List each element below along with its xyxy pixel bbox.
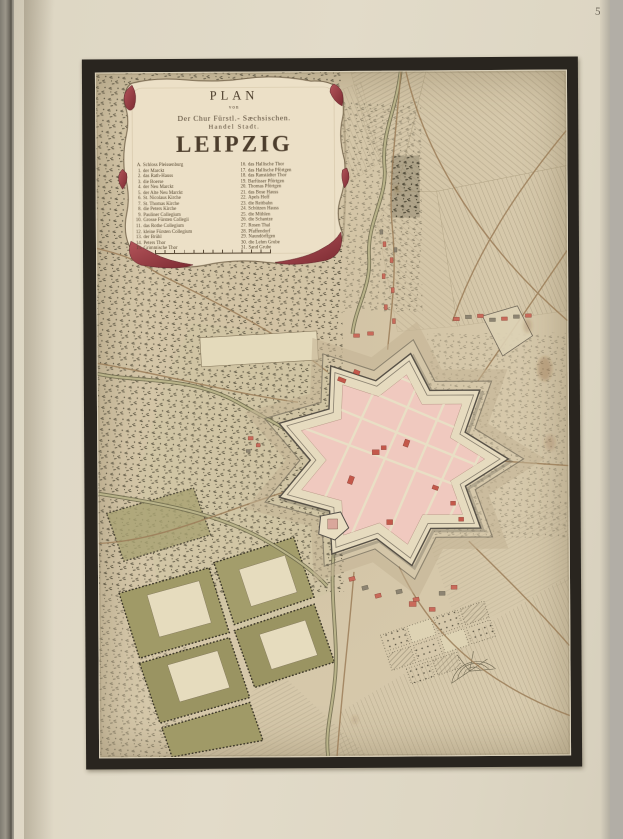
title-cartouche: PLAN von Der Chur Fürstl.- Sæchsischen. … (122, 77, 347, 270)
map-legend: A. Schloss Pleissenburg 1. der Marckt 2.… (122, 162, 347, 252)
legend-column-right: 16. das Hallische Thor 17. das Hallische… (236, 162, 338, 251)
scale-bar-ticks (155, 249, 271, 253)
map-title-city: LEIPZIG (122, 131, 346, 158)
gutter-shadow (24, 0, 54, 839)
map-title-line4: Handel Stadt. (122, 123, 346, 131)
map-title-line1: PLAN (122, 88, 346, 104)
scale-bar (155, 249, 271, 255)
legend-column-left: A. Schloss Pleissenburg 1. der Marckt 2.… (131, 163, 233, 252)
page-right-edge-outer (610, 0, 623, 839)
book-page: 58 (12, 0, 614, 839)
map-plate-frame: PLAN von Der Chur Fürstl.- Sæchsischen. … (82, 56, 582, 769)
book-gutter-line (10, 0, 12, 839)
legend-entry-key: 15. (132, 246, 142, 252)
map-title-line3: Der Chur Fürstl.- Sæchsischen. (122, 113, 346, 123)
map-canvas: PLAN von Der Chur Fürstl.- Sæchsischen. … (95, 70, 571, 759)
map-title-line2: von (122, 105, 346, 111)
page-right-edge (600, 0, 610, 839)
